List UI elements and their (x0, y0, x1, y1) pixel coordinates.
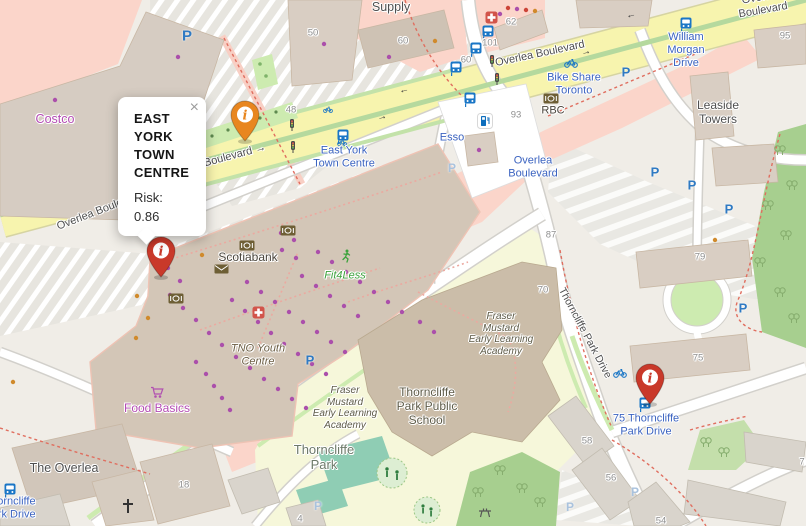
parking-icon: P (566, 500, 574, 514)
parking-icon: P (448, 161, 456, 175)
parking-icon: P (182, 28, 192, 45)
popup-close-icon[interactable]: × (190, 100, 199, 116)
map-canvas[interactable] (0, 0, 806, 526)
parking-icon: P (739, 301, 748, 316)
parking-icon: P (306, 353, 315, 368)
popup-title: EAST YORK TOWN CENTRE (134, 110, 196, 182)
post-icon (215, 265, 229, 274)
bank-icon (240, 241, 255, 251)
popup-risk-value: 0.86 (134, 208, 198, 225)
map-marker-east-york-town-centre[interactable]: i (230, 100, 260, 149)
parking-icon: P (725, 202, 734, 217)
popup-risk-label: Risk: (134, 189, 198, 206)
clinic-icon (486, 12, 498, 24)
bank-icon (169, 294, 184, 304)
parking-icon: P (314, 499, 322, 513)
marker-info-glyph: i (648, 372, 653, 387)
clinic-icon (253, 307, 265, 319)
map-marker-75-thorncliffe-park-drive[interactable]: i (635, 363, 665, 412)
marker-info-glyph: i (243, 109, 248, 124)
parking-icon: P (622, 65, 631, 80)
parking-icon: P (631, 485, 639, 499)
parking-icon: P (651, 165, 660, 180)
map[interactable]: Overlea Boulevard Overlea Boulevard → Ov… (0, 0, 806, 526)
marker-info-glyph: i (159, 245, 164, 260)
bank-icon (544, 94, 559, 104)
map-popup: × EAST YORK TOWN CENTRE Risk: 0.86 (118, 97, 206, 236)
parking-icon: P (688, 178, 697, 193)
map-marker-east-york-town-centre-west[interactable]: i (146, 236, 176, 285)
fuel-station-icon (478, 114, 493, 129)
bank-icon (281, 226, 296, 236)
